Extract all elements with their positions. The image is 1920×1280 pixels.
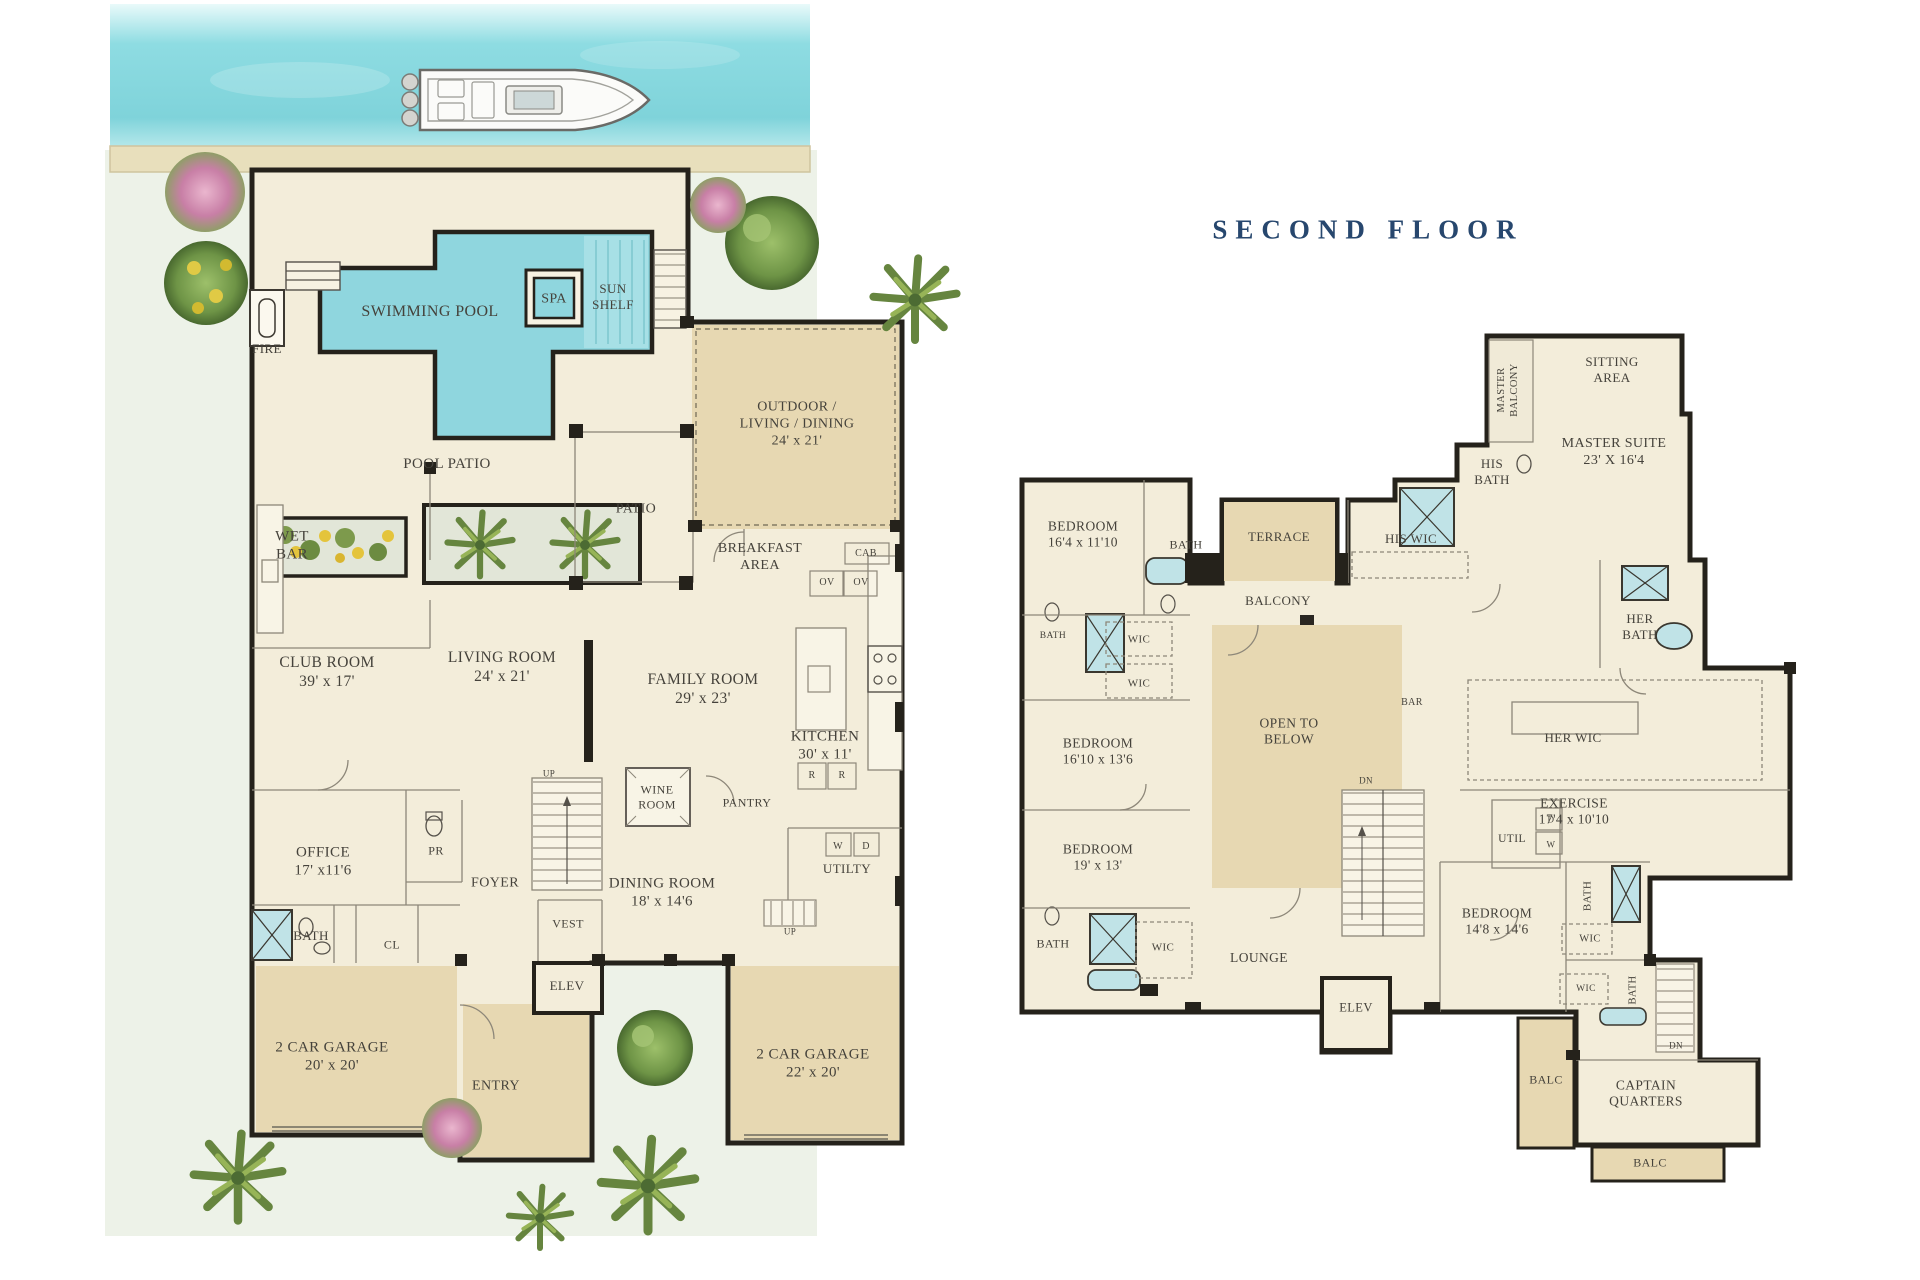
balcony-left-area bbox=[1518, 1018, 1574, 1148]
garage-right-area bbox=[731, 966, 899, 1140]
first-floor-plan bbox=[105, 4, 957, 1248]
elevator-shaft-2 bbox=[1322, 978, 1390, 1050]
boat-icon bbox=[402, 70, 649, 130]
tub-captain bbox=[1600, 1008, 1646, 1025]
tub-bath4 bbox=[1088, 970, 1140, 990]
pink-shrub-icon bbox=[165, 152, 245, 232]
kitchen-counter bbox=[868, 556, 902, 770]
terrace-area bbox=[1224, 502, 1335, 581]
her-tub bbox=[1656, 623, 1692, 649]
pink-shrub-icon bbox=[690, 177, 746, 233]
sun-shelf-area bbox=[584, 236, 648, 348]
second-floor-title: SECOND FLOOR bbox=[1212, 215, 1523, 246]
wine-room-box bbox=[626, 768, 690, 826]
balcony-bottom-area bbox=[1592, 1147, 1724, 1181]
entry-area bbox=[463, 1004, 589, 1157]
courtyard-plant-icon bbox=[617, 1010, 693, 1086]
master-balcony-area bbox=[1489, 340, 1533, 442]
garage-left-area bbox=[256, 966, 457, 1132]
floorplan-drawing bbox=[0, 0, 1920, 1280]
kitchen-island bbox=[796, 628, 846, 730]
tub-bedroom1 bbox=[1146, 558, 1188, 584]
green-shrub-icon bbox=[164, 241, 248, 325]
elevator-shaft bbox=[534, 963, 602, 1013]
floorplan-page: SECOND FLOOR FIRESWIMMING POOLSPASUNSHEL… bbox=[0, 0, 1920, 1280]
pink-shrub-icon bbox=[422, 1098, 482, 1158]
deck-steps bbox=[286, 262, 340, 290]
second-floor-plan bbox=[1022, 336, 1796, 1181]
outdoor-living-area bbox=[692, 325, 899, 529]
